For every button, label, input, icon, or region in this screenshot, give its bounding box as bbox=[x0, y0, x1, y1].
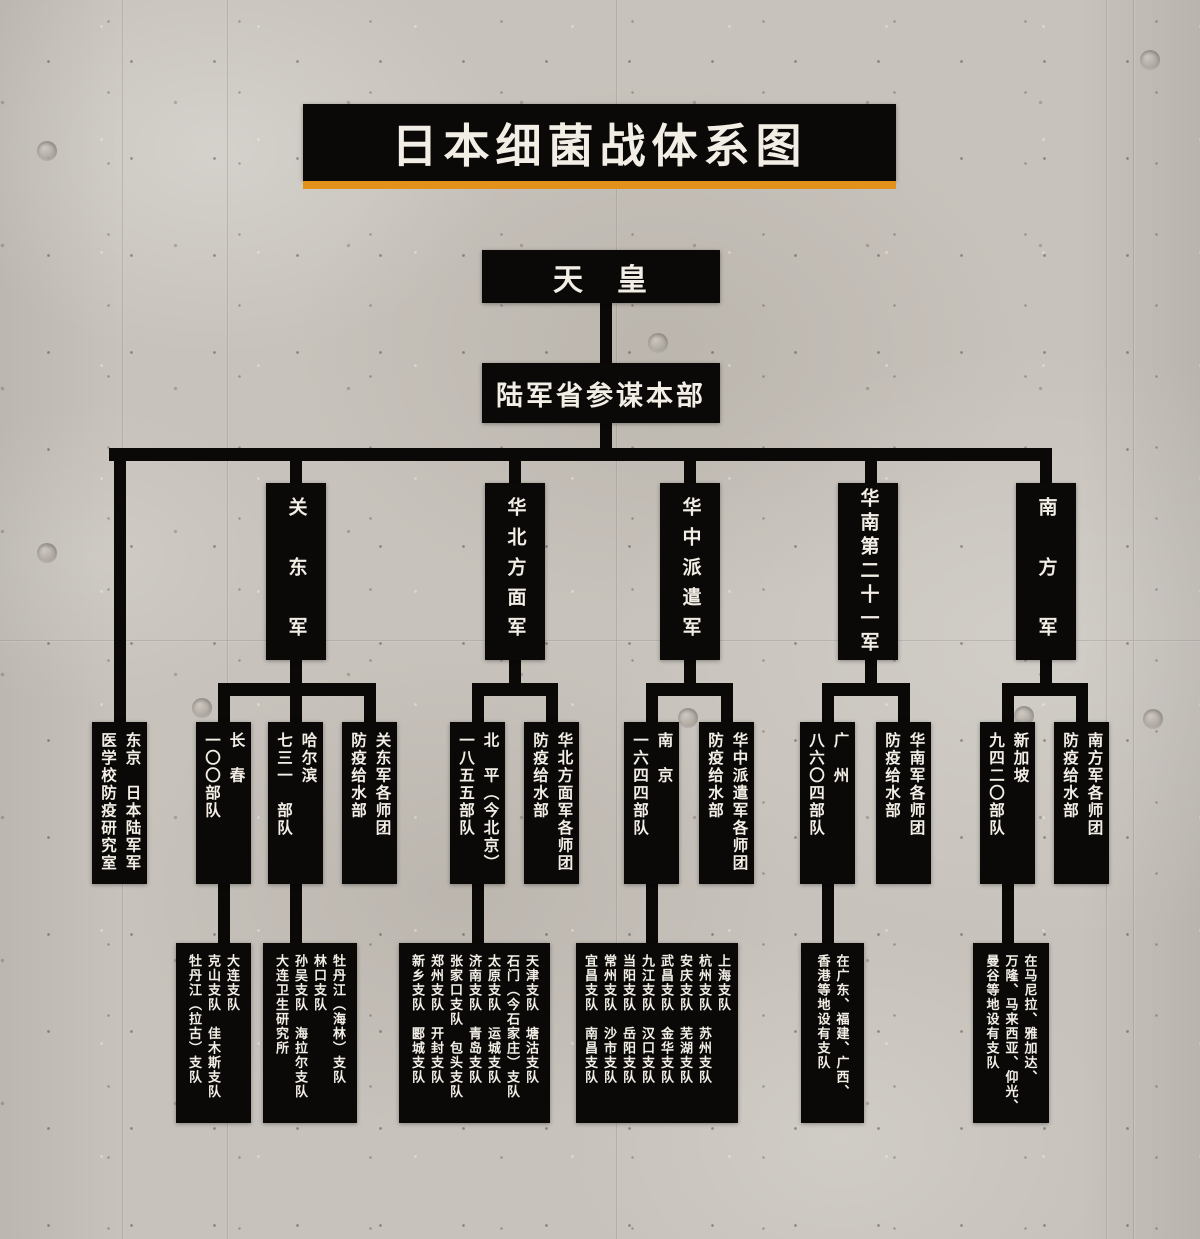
node-unit-1855-branches: 天津支队 塘沽支队 石门（今石家庄）支队 太原支队 运城支队 济南支队 青岛支队… bbox=[399, 943, 550, 1123]
vertical-text-column: 万隆、马来西亚、仰光、 bbox=[1005, 954, 1018, 1114]
vertical-text-column: 香港等地设有支队 bbox=[817, 954, 830, 1070]
title-accent-underline bbox=[303, 181, 896, 189]
node-singapore-unit-9420: 新加坡 九四二〇部队 bbox=[980, 722, 1035, 884]
vertical-text-column: 长 春 bbox=[228, 732, 244, 785]
connector-line bbox=[1002, 683, 1014, 722]
vertical-text-column: 在马尼拉、雅加达、 bbox=[1024, 954, 1037, 1085]
vertical-text-column: 一八五五部队 bbox=[458, 732, 474, 837]
vertical-text-column: 七三一 部队 bbox=[276, 732, 292, 837]
vertical-text-column: 武昌支队 金华支队 bbox=[660, 954, 673, 1085]
vertical-text-column: 当阳支队 岳阳支队 bbox=[622, 954, 635, 1085]
vertical-text-column: 郑州支队 开封支队 bbox=[430, 954, 443, 1085]
vertical-text-column: 大连卫生研究所 bbox=[275, 954, 288, 1056]
vertical-text-column: 宜昌支队 南昌支队 bbox=[584, 954, 597, 1085]
node-tokyo-army-medical-school-epidemic-lab: 东京 日本陆军军 医学校防疫研究室 bbox=[92, 722, 147, 884]
form-tie-hole bbox=[678, 708, 698, 728]
vertical-text-column: 华南军各师团 bbox=[908, 732, 924, 837]
title-bar: 日本细菌战体系图 bbox=[303, 104, 896, 181]
connector-line bbox=[218, 683, 230, 722]
connector-line bbox=[472, 884, 484, 943]
node-emperor: 天 皇 bbox=[482, 250, 720, 303]
vertical-text-column: 张家口支队 包头支队 bbox=[449, 954, 462, 1099]
node-changchun-unit-100: 长 春 一〇〇部队 bbox=[196, 722, 251, 884]
vertical-text-column: 一〇〇部队 bbox=[204, 732, 220, 820]
connector-line bbox=[822, 683, 834, 722]
vertical-text-column: 牡丹江（拉古）支队 bbox=[188, 954, 201, 1085]
vertical-text-column: 华中派遣军各师团 bbox=[731, 732, 747, 872]
vertical-text-column: 石门（今石家庄）支队 bbox=[506, 954, 519, 1099]
connector-line bbox=[646, 884, 658, 943]
poster-canvas: 日本细菌战体系图 天 皇 陆军省参谋本部 关 东 军 华北方面军 华中派遣军 华… bbox=[0, 0, 1200, 1239]
node-unit-1644-branches: 上海支队 杭州支队 苏州支队 安庆支队 芜湖支队 武昌支队 金华支队 九江支队 … bbox=[576, 943, 738, 1123]
connector-bracket bbox=[646, 683, 733, 696]
connector-line bbox=[865, 461, 877, 483]
connector-line bbox=[1002, 884, 1014, 943]
node-nanjing-unit-1644: 南 京 一六四四部队 bbox=[624, 722, 679, 884]
concrete-seam bbox=[1106, 0, 1108, 1239]
vertical-text-column: 南 京 bbox=[656, 732, 672, 785]
connector-line bbox=[364, 683, 376, 722]
connector-line bbox=[546, 683, 558, 722]
node-army-ministry-general-staff: 陆军省参谋本部 bbox=[482, 363, 720, 423]
node-central-china-divisions-water-supply: 华中派遣军各师团 防疫给水部 bbox=[699, 722, 754, 884]
node-unit-9420-branches: 在马尼拉、雅加达、 万隆、马来西亚、仰光、 曼谷等地设有支队 bbox=[973, 943, 1049, 1123]
form-tie-hole bbox=[648, 333, 668, 353]
connector-line bbox=[290, 660, 302, 683]
connector-line bbox=[1040, 660, 1052, 683]
vertical-text-column: 防疫给水部 bbox=[707, 732, 723, 820]
node-kwantung-divisions-water-supply: 关东军各师团 防疫给水部 bbox=[342, 722, 397, 884]
vertical-text-column: 克山支队 佳木斯支队 bbox=[207, 954, 220, 1099]
node-unit-8604-branches: 在广东、福建、广西、 香港等地设有支队 bbox=[801, 943, 864, 1123]
vertical-text-column: 新加坡 bbox=[1012, 732, 1028, 785]
vertical-text-column: 杭州支队 苏州支队 bbox=[698, 954, 711, 1085]
node-label: 天 皇 bbox=[553, 255, 649, 299]
connector-line bbox=[600, 423, 612, 448]
vertical-text-column: 一六四四部队 bbox=[632, 732, 648, 837]
connector-bracket bbox=[822, 683, 910, 696]
vertical-text-column: 东京 日本陆军军 bbox=[124, 732, 140, 872]
connector-line bbox=[1040, 461, 1052, 483]
node-label: 关 东 军 bbox=[287, 497, 306, 647]
connector-line bbox=[822, 884, 834, 943]
form-tie-hole bbox=[37, 141, 57, 161]
vertical-text-column: 天津支队 塘沽支队 bbox=[525, 954, 538, 1085]
node-guangzhou-unit-8604: 广 州 八六〇四部队 bbox=[800, 722, 855, 884]
form-tie-hole bbox=[192, 698, 212, 718]
connector-line bbox=[865, 660, 877, 683]
node-label: 陆军省参谋本部 bbox=[496, 374, 706, 413]
node-north-china-area-army: 华北方面军 bbox=[485, 483, 545, 660]
vertical-text-column: 广 州 bbox=[832, 732, 848, 785]
vertical-text-column: 在广东、福建、广西、 bbox=[836, 954, 849, 1099]
vertical-text-column: 北 平（今北京） bbox=[482, 732, 498, 872]
connector-line bbox=[721, 683, 733, 722]
node-southern-army: 南 方 军 bbox=[1016, 483, 1076, 660]
node-beiping-unit-1855: 北 平（今北京） 一八五五部队 bbox=[450, 722, 505, 884]
vertical-text-column: 济南支队 青岛支队 bbox=[468, 954, 481, 1085]
connector-line bbox=[290, 884, 302, 943]
vertical-text-column: 大连支队 bbox=[226, 954, 239, 1012]
vertical-text-column: 九江支队 汉口支队 bbox=[641, 954, 654, 1085]
connector-line bbox=[684, 660, 696, 683]
form-tie-hole bbox=[1143, 709, 1163, 729]
form-tie-hole bbox=[37, 543, 57, 563]
vertical-text-column: 曼谷等地设有支队 bbox=[986, 954, 999, 1070]
connector-line bbox=[600, 303, 612, 363]
vertical-text-column: 南方军各师团 bbox=[1086, 732, 1102, 837]
connector-line bbox=[218, 884, 230, 943]
vertical-text-column: 八六〇四部队 bbox=[808, 732, 824, 837]
node-southern-divisions-water-supply: 南方军各师团 防疫给水部 bbox=[1054, 722, 1109, 884]
connector-rail bbox=[109, 448, 1052, 461]
vertical-text-column: 牡丹江（海林）支队 bbox=[332, 954, 345, 1085]
connector-line bbox=[898, 683, 910, 722]
connector-line bbox=[646, 683, 658, 722]
vertical-text-column: 孙吴支队 海拉尔支队 bbox=[294, 954, 307, 1099]
connector-line bbox=[1076, 683, 1088, 722]
connector-line bbox=[509, 461, 521, 483]
node-label: 华北方面军 bbox=[506, 497, 525, 647]
vertical-text-column: 新乡支队 郾城支队 bbox=[411, 954, 424, 1085]
concrete-seam bbox=[1133, 0, 1135, 1239]
vertical-text-column: 医学校防疫研究室 bbox=[100, 732, 116, 872]
connector-line bbox=[114, 448, 126, 722]
vertical-text-column: 太原支队 运城支队 bbox=[487, 954, 500, 1085]
vertical-text-column: 防疫给水部 bbox=[884, 732, 900, 820]
connector-line bbox=[509, 660, 521, 683]
vertical-text-column: 防疫给水部 bbox=[350, 732, 366, 820]
node-label: 华中派遣军 bbox=[681, 497, 700, 647]
node-south-china-divisions-water-supply: 华南军各师团 防疫给水部 bbox=[876, 722, 931, 884]
node-label: 南 方 军 bbox=[1037, 497, 1056, 647]
node-north-china-divisions-water-supply: 华北方面军各师团 防疫给水部 bbox=[524, 722, 579, 884]
vertical-text-column: 常州支队 沙市支队 bbox=[603, 954, 616, 1085]
vertical-text-column: 安庆支队 芜湖支队 bbox=[679, 954, 692, 1085]
form-tie-hole bbox=[1140, 50, 1160, 70]
vertical-text-column: 关东军各师团 bbox=[374, 732, 390, 837]
vertical-text-column: 防疫给水部 bbox=[1062, 732, 1078, 820]
vertical-text-column: 上海支队 bbox=[717, 954, 730, 1012]
node-south-china-21st-army: 华南第二十一军 bbox=[838, 483, 898, 660]
node-label: 华南第二十一军 bbox=[859, 488, 878, 656]
node-unit-731-branches: 牡丹江（海林）支队 林口支队 孙吴支队 海拉尔支队 大连卫生研究所 bbox=[263, 943, 357, 1123]
node-harbin-unit-731: 哈尔滨 七三一 部队 bbox=[268, 722, 323, 884]
node-central-china-expeditionary-army: 华中派遣军 bbox=[660, 483, 720, 660]
connector-line bbox=[290, 683, 302, 722]
vertical-text-column: 林口支队 bbox=[313, 954, 326, 1012]
node-unit-100-branches: 大连支队 克山支队 佳木斯支队 牡丹江（拉古）支队 bbox=[176, 943, 251, 1123]
connector-line bbox=[684, 461, 696, 483]
vertical-text-column: 华北方面军各师团 bbox=[556, 732, 572, 872]
vertical-text-column: 九四二〇部队 bbox=[988, 732, 1004, 837]
node-kwantung-army: 关 东 军 bbox=[266, 483, 326, 660]
connector-line bbox=[290, 461, 302, 483]
connector-line bbox=[472, 683, 484, 722]
poster-title: 日本细菌战体系图 bbox=[392, 110, 808, 176]
vertical-text-column: 防疫给水部 bbox=[532, 732, 548, 820]
vertical-text-column: 哈尔滨 bbox=[300, 732, 316, 785]
